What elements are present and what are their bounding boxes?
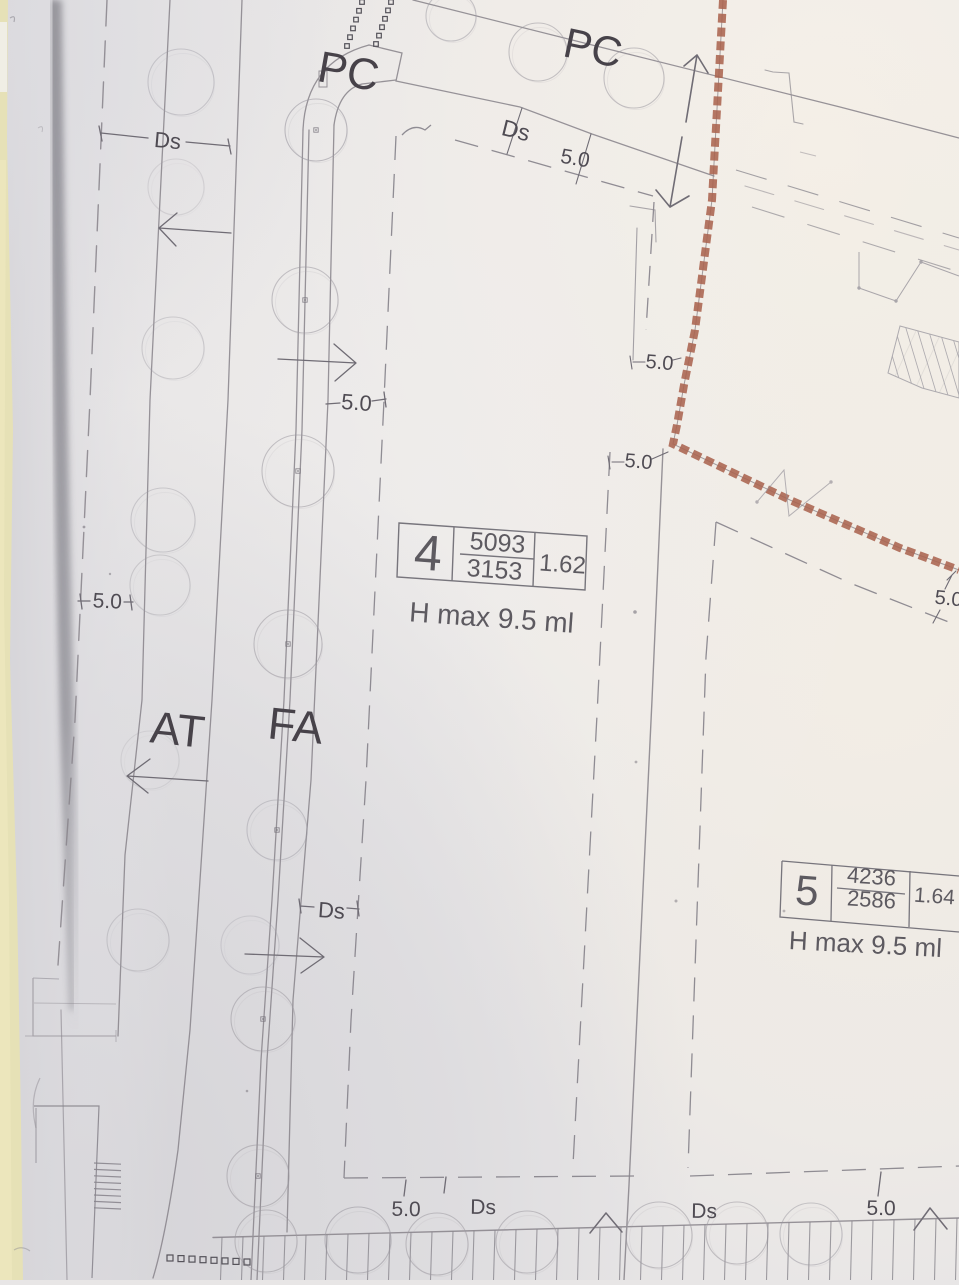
svg-text:4: 4	[412, 524, 444, 582]
svg-text:Ds: Ds	[691, 1200, 717, 1223]
svg-text:5.0: 5.0	[92, 589, 122, 613]
svg-text:Ds: Ds	[470, 1196, 496, 1219]
svg-text:5.0: 5.0	[866, 1197, 896, 1221]
svg-text:1.62: 1.62	[538, 549, 586, 579]
svg-text:5.0: 5.0	[391, 1198, 421, 1222]
svg-text:3153: 3153	[466, 554, 523, 586]
svg-text:5.0: 5.0	[624, 450, 654, 474]
svg-text:Ds: Ds	[317, 897, 346, 924]
svg-text:2586: 2586	[846, 885, 897, 913]
svg-text:5.0: 5.0	[934, 587, 959, 612]
svg-text:Ds: Ds	[153, 127, 182, 154]
svg-text:5.0: 5.0	[645, 351, 675, 375]
svg-text:1.64: 1.64	[913, 884, 956, 910]
svg-text:FA: FA	[266, 697, 326, 753]
svg-text:AT: AT	[148, 701, 207, 757]
svg-text:5: 5	[794, 866, 821, 915]
svg-text:5.0: 5.0	[340, 389, 372, 416]
svg-text:PC: PC	[314, 42, 383, 101]
